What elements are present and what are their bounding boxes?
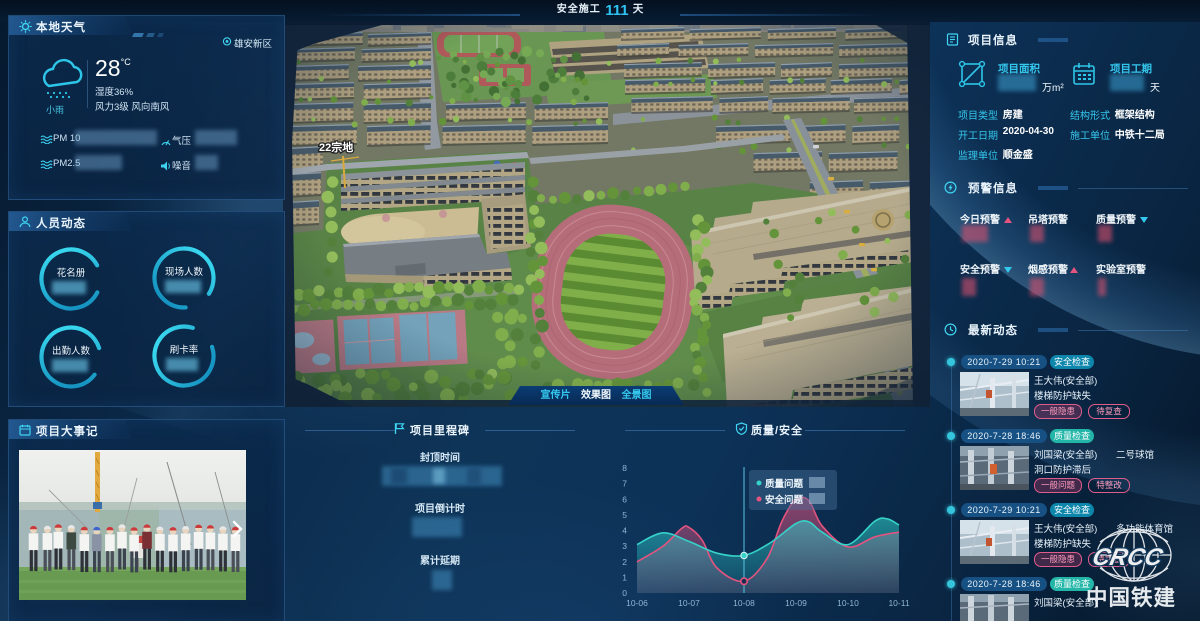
svg-text:CRCC: CRCC <box>1090 544 1165 571</box>
svg-text:10-06: 10-06 <box>626 598 648 608</box>
svg-text:10-10: 10-10 <box>837 598 859 608</box>
svg-text:2: 2 <box>622 557 627 567</box>
svg-text:22宗地: 22宗地 <box>319 140 353 154</box>
svg-text:现场人数: 现场人数 <box>165 266 204 278</box>
svg-text:质量问题: 质量问题 <box>765 478 804 490</box>
svg-text:10-07: 10-07 <box>678 598 700 608</box>
svg-text:6: 6 <box>622 494 627 504</box>
svg-text:1: 1 <box>622 572 627 582</box>
svg-text:花名册: 花名册 <box>57 267 86 279</box>
svg-text:出勤人数: 出勤人数 <box>52 345 91 357</box>
svg-text:8: 8 <box>622 463 627 473</box>
svg-text:0: 0 <box>622 588 627 598</box>
svg-text:刷卡率: 刷卡率 <box>170 344 199 356</box>
svg-text:5: 5 <box>622 510 627 520</box>
svg-text:中国铁建: 中国铁建 <box>1086 585 1176 610</box>
svg-text:4: 4 <box>622 526 627 536</box>
svg-text:7: 7 <box>622 479 627 489</box>
svg-text:3: 3 <box>622 541 627 551</box>
svg-text:安全问题: 安全问题 <box>765 494 804 506</box>
svg-text:10-08: 10-08 <box>733 598 755 608</box>
svg-text:10-11: 10-11 <box>888 598 909 608</box>
svg-text:10-09: 10-09 <box>785 598 807 608</box>
